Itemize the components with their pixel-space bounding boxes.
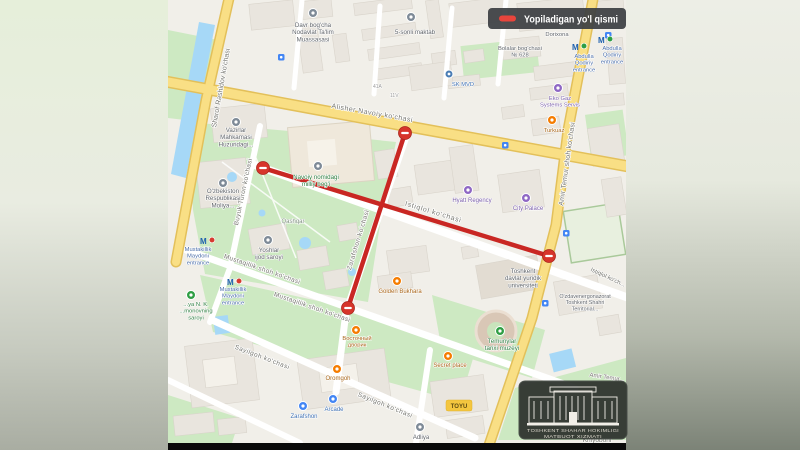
legend: Yopiladigan yo'l qismi: [488, 8, 626, 29]
svg-text:M: M: [200, 237, 207, 246]
label-hyatt: Hyatt Regency: [452, 198, 491, 204]
svg-text:M: M: [598, 36, 605, 45]
label-maktab5: 5-sonli maktab: [395, 29, 436, 36]
label-mustaqillik-entrance-2: MustakillikMaydonientrance: [220, 287, 247, 306]
svg-text:M: M: [572, 43, 579, 52]
blurred-right-edge: [624, 0, 800, 450]
watermark-org-name: TOSHKENT SHAHAR HOKIMLIGI: [527, 428, 619, 434]
press-service-watermark: TOSHKENT SHAHAR HOKIMLIGI MATBUOT XIZMAT…: [519, 381, 627, 440]
watermark-org-dept: MATBUOT XIZMATI: [544, 434, 602, 440]
label-house-11v: 11V: [390, 93, 399, 99]
label-abdulla-qodiriy-1: AbdullaQodiriyentrance: [573, 54, 596, 73]
label-mustaqillik-entrance-1: MustakillikMaydonientrance: [185, 247, 212, 266]
blurred-left-edge: [0, 0, 170, 450]
label-arcade: Arcade: [324, 407, 344, 413]
label-temuriylar: Temuriylartarixi muzeyi: [485, 338, 519, 352]
svg-text:M: M: [227, 278, 234, 287]
label-dorixona: Dorixona: [545, 32, 569, 38]
label-qashqar: Qashqar: [281, 219, 304, 225]
label-turkuaz: Turkuaz: [544, 128, 565, 134]
toyu-badge: TOYU: [446, 400, 472, 411]
label-city-palace: City Palace: [513, 206, 544, 212]
closed-road-swatch: [499, 16, 516, 22]
label-sk-mvd: SK MVD: [452, 82, 474, 88]
legend-label: Yopiladigan yo'l qismi: [524, 15, 618, 26]
label-abdulla-qodiriy-2: AbdullaQodiriyentrance: [601, 46, 624, 65]
screenshot: M M M M Sharof Rashidov ko'chasi Alisher…: [0, 0, 800, 450]
label-zarafshon-hall: Zarafshon: [290, 414, 317, 420]
label-yoshlar: Yoshlarijod saroyi: [255, 247, 283, 261]
label-house-41a: 41A: [373, 84, 383, 90]
map-image: M M M M Sharof Rashidov ko'chasi Alisher…: [0, 0, 800, 450]
label-adliya: Adliya: [413, 435, 430, 441]
label-oromgoh: Oromgoh: [325, 376, 350, 382]
label-secret-place: Secret place: [433, 363, 467, 369]
label-golden-bukhara: Golden Bukhara: [378, 289, 422, 295]
photo-bottom-bar: [168, 443, 626, 450]
label-toyu: TOYU: [451, 404, 468, 410]
label-davr-bogcha: Davr bog'chaNodavlat Ta'limMuassasasi: [292, 22, 334, 43]
